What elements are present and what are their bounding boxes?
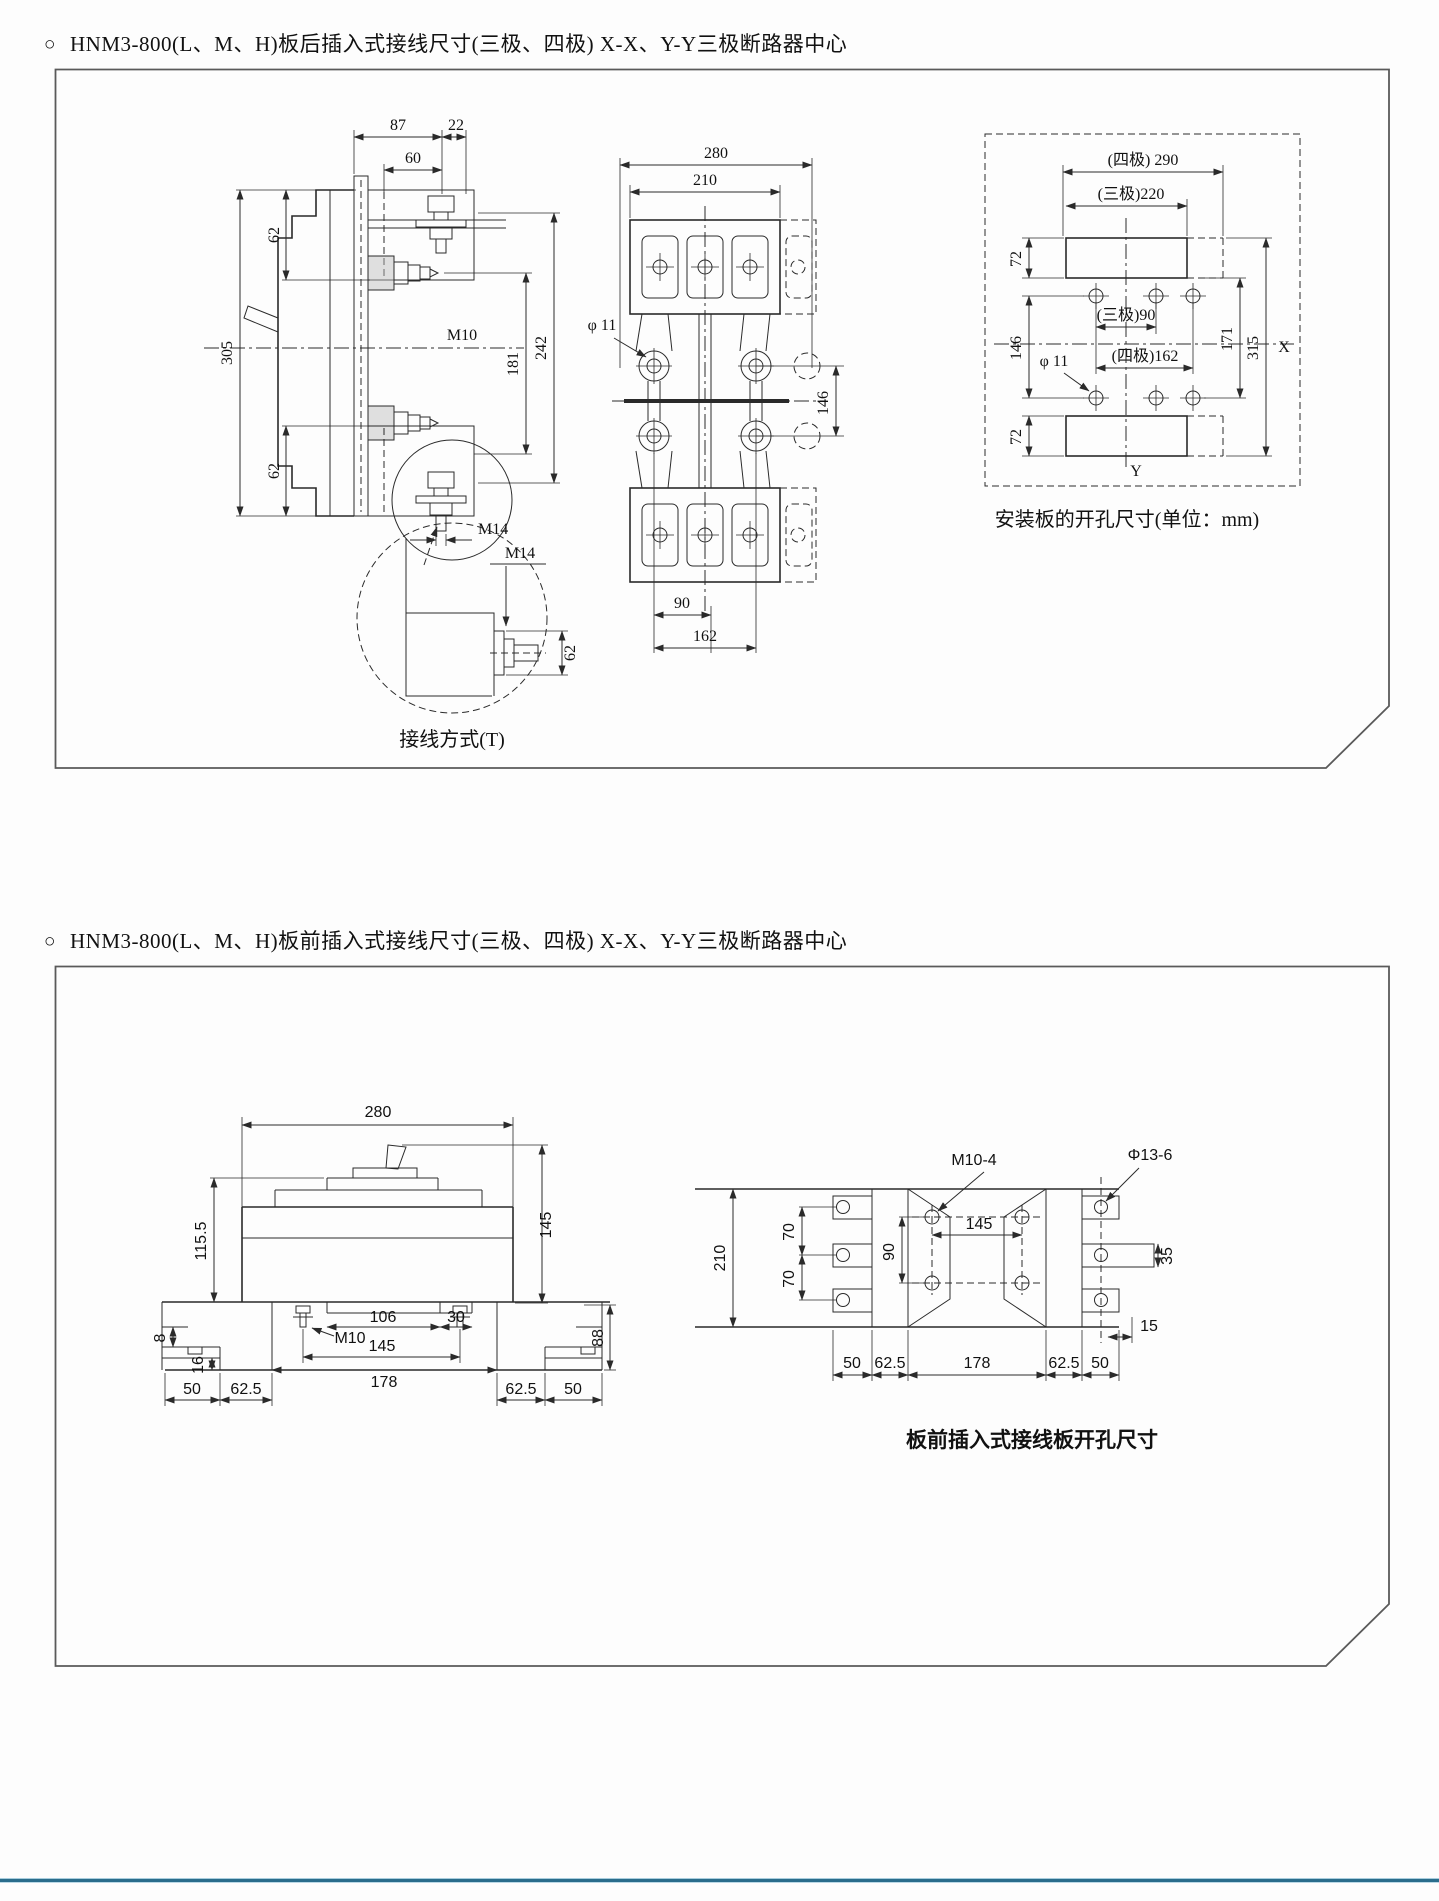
- label-phi11: φ 11: [588, 317, 617, 334]
- dim-210-label: 210: [712, 1245, 729, 1272]
- panel-border: [56, 967, 1390, 1667]
- panel-front-insert: 280: [54, 965, 1391, 1668]
- dim-305-label: 305: [219, 341, 236, 365]
- dim-106-label: 106: [370, 1309, 397, 1326]
- rear-stud-upper: [368, 256, 438, 290]
- board-drill-caption: 板前插入式接线板开孔尺寸: [906, 1428, 1158, 1452]
- rear-insert-figure: M14 87 22 60 62 305 62 M10: [54, 68, 1391, 770]
- dim-88-label: 88: [590, 1329, 607, 1347]
- section-title-front: ○HNM3-800(L、M、H)板前插入式接线尺寸(三极、四极) X-X、Y-Y…: [44, 925, 847, 955]
- connection-board-drill-plan: 210 70 70: [695, 1147, 1176, 1452]
- drill-holes-row1: [1083, 283, 1206, 309]
- dim-181-label: 181: [505, 352, 522, 376]
- axis-y-label: Y: [1130, 463, 1142, 480]
- dim-60-label: 60: [405, 150, 421, 167]
- list-bullet-icon: ○: [44, 931, 56, 953]
- dim-178-label: 178: [371, 1374, 398, 1391]
- dim-62-5-right-label: 62.5: [1048, 1355, 1079, 1372]
- dim-50-right-label: 50: [564, 1381, 582, 1398]
- drill-holes-row2: [1083, 385, 1206, 411]
- label-m10: M10: [447, 327, 477, 344]
- dim-m14-label: M14: [478, 521, 508, 538]
- dim-90-label: 90: [674, 595, 690, 612]
- dim-115-5-label: 115.5: [193, 1221, 210, 1260]
- dim-35-label: 35: [1159, 1247, 1176, 1265]
- dim-62-lower-label: 62: [266, 463, 283, 479]
- terminal-detail-view: M14 62: [357, 523, 579, 713]
- label-m10-base: M10: [334, 1330, 365, 1347]
- dim-162-label: 162: [693, 628, 717, 645]
- dim-145-height-label: 145: [538, 1212, 555, 1239]
- dim-145-span-label: 145: [369, 1338, 396, 1355]
- dim-50-left-label: 50: [183, 1381, 201, 1398]
- section-title-rear: ○HNM3-800(L、M、H)板后插入式接线尺寸(三极、四极) X-X、Y-Y…: [44, 28, 847, 58]
- detail-m14-label: M14: [505, 545, 535, 562]
- dim-22-label: 22: [448, 117, 464, 134]
- datasheet-page: ○HNM3-800(L、M、H)板后插入式接线尺寸(三极、四极) X-X、Y-Y…: [0, 0, 1439, 1901]
- rear-side-view-drawing: M14 87 22 60 62 305 62 M10: [204, 117, 579, 751]
- dim-50-right-label: 50: [1091, 1355, 1109, 1372]
- detail-callout-circle: [392, 440, 512, 560]
- dim-50-left-label: 50: [843, 1355, 861, 1372]
- base-screw-left: [293, 1306, 313, 1327]
- dim-162-4p-label: (四极)162: [1112, 347, 1179, 365]
- dim-62-5-left-label: 62.5: [230, 1381, 261, 1398]
- dim-16-label: 16: [190, 1356, 207, 1374]
- dim-280-label: 280: [365, 1104, 392, 1121]
- dim-72-bottom-label: 72: [1008, 429, 1025, 445]
- dim-30-label: 30: [447, 1309, 465, 1326]
- front-side-view-drawing: 280: [152, 1104, 616, 1406]
- dim-70-upper-label: 70: [781, 1223, 798, 1241]
- axis-x-label: X: [1278, 339, 1290, 356]
- rear-front-view-drawing: 280 210: [588, 145, 844, 653]
- dim-145-board-label: 145: [966, 1216, 993, 1233]
- dim-90-board-label: 90: [881, 1243, 898, 1261]
- page-bottom-rule: [0, 1878, 1439, 1883]
- mounting-plate-drill-plan: (四极) 290 (三极)220 72 (三极)90 (: [985, 134, 1300, 531]
- dim-220-label: (三极)220: [1098, 185, 1165, 203]
- dim-242-label: 242: [533, 336, 550, 360]
- dim-210-label: 210: [693, 172, 717, 189]
- dim-146-label: 146: [815, 391, 832, 415]
- label-m10-4: M10-4: [951, 1152, 996, 1169]
- drill-plan-caption: 安装板的开孔尺寸(单位：mm): [995, 508, 1259, 531]
- dim-315-label: 315: [1245, 336, 1262, 360]
- dim-62-upper-label: 62: [266, 227, 283, 243]
- section-title-front-text: HNM3-800(L、M、H)板前插入式接线尺寸(三极、四极) X-X、Y-Y三…: [70, 929, 847, 953]
- panel-rear-insert: M14 87 22 60 62 305 62 M10: [54, 68, 1391, 770]
- label-phi11-plate: φ 11: [1040, 353, 1069, 370]
- label-phi13-6: Φ13-6: [1128, 1147, 1173, 1164]
- dim-70-lower-label: 70: [781, 1270, 798, 1288]
- front-insert-figure: 280: [54, 965, 1391, 1668]
- section-title-rear-text: HNM3-800(L、M、H)板后插入式接线尺寸(三极、四极) X-X、Y-Y三…: [70, 32, 847, 56]
- wiring-mode-caption: 接线方式(T): [399, 728, 505, 751]
- dim-62-5-right-label: 62.5: [505, 1381, 536, 1398]
- dim-8-label: 8: [152, 1333, 169, 1342]
- dim-72-top-label: 72: [1008, 251, 1025, 267]
- dim-178-board-label: 178: [964, 1355, 991, 1372]
- dim-290-label: (四极) 290: [1108, 151, 1179, 169]
- left-terminal-tabs: [799, 1196, 872, 1312]
- detail-62-label: 62: [562, 645, 579, 661]
- dim-87-label: 87: [390, 117, 406, 134]
- dim-62-5-left-label: 62.5: [874, 1355, 905, 1372]
- dim-146-plate-label: 146: [1008, 336, 1025, 360]
- dim-171-label: 171: [1219, 327, 1236, 351]
- rear-stud-lower: [368, 406, 438, 440]
- list-bullet-icon: ○: [44, 34, 56, 56]
- dim-280-label: 280: [704, 145, 728, 162]
- panel-border: [56, 70, 1390, 769]
- dim-15-label: 15: [1140, 1318, 1158, 1335]
